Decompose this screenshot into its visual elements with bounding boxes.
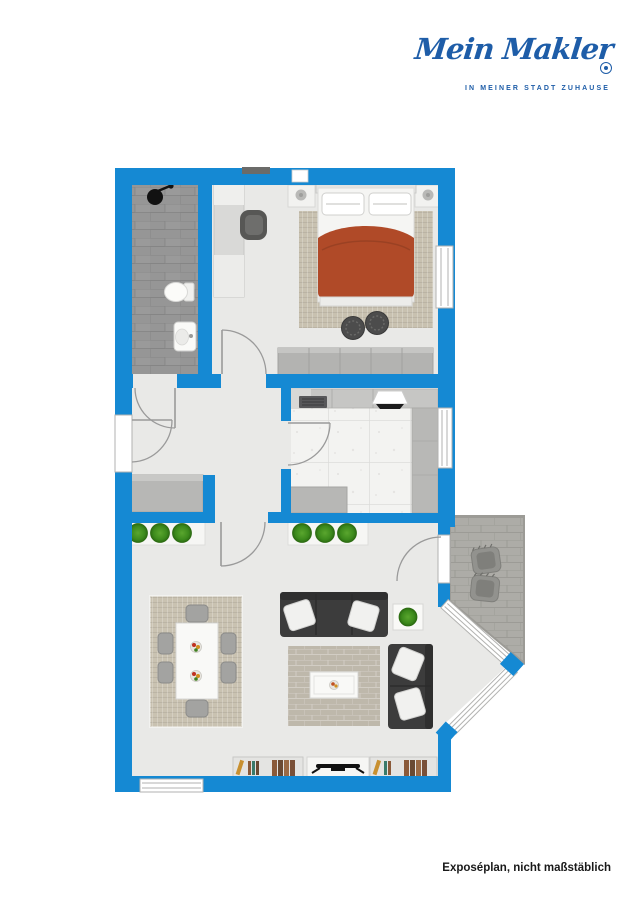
brand-tagline: IN MEINER STADT ZUHAUSE	[402, 85, 612, 92]
wall-left	[115, 168, 132, 792]
side-table	[393, 604, 423, 630]
hallway	[123, 475, 203, 512]
floor-plan	[0, 0, 636, 900]
plant-shelf-right	[288, 522, 368, 545]
plant-icon	[151, 524, 170, 543]
coffee-table	[310, 672, 358, 698]
wall-kitchen-bottom	[281, 513, 455, 523]
toilet	[165, 283, 195, 302]
wall-kitchen-left	[281, 388, 291, 421]
plan-caption: Exposéplan, nicht maßstäblich	[442, 862, 611, 874]
sofa-large	[280, 592, 388, 637]
wall-top	[115, 168, 455, 185]
dining-table	[176, 623, 218, 699]
plant-shelf-left	[122, 522, 205, 545]
brand-logo: Mein Makler IN MEINER STADT ZUHAUSE	[402, 34, 612, 92]
sink	[174, 322, 196, 351]
pouf	[342, 317, 365, 340]
fruit-bowl	[191, 671, 202, 682]
bookshelf	[370, 757, 437, 778]
fruit-bowl	[191, 642, 202, 653]
plant-icon	[173, 524, 192, 543]
wall-right-upper	[438, 168, 455, 527]
kitchen-low-cabinet	[285, 487, 347, 513]
nightstand-right	[415, 185, 442, 207]
wall-bathroom-right	[198, 185, 212, 388]
window-bottom	[140, 779, 203, 792]
hall-sideboard	[123, 475, 203, 512]
stove	[299, 396, 327, 408]
dining-chair	[186, 700, 208, 717]
dining-chair	[158, 662, 173, 683]
logo-registered-icon	[600, 62, 612, 74]
desk-chair	[240, 210, 267, 240]
top-wall-notch	[292, 170, 308, 182]
wardrobe	[278, 348, 433, 375]
dining-chair	[221, 633, 236, 654]
dining-chair	[221, 662, 236, 683]
brand-name: Mein Makler	[413, 34, 614, 64]
blanket	[318, 226, 414, 298]
nightstand-left	[288, 185, 315, 207]
wall-hall-living	[115, 512, 215, 523]
bookshelf	[233, 757, 303, 778]
kitchen-counter-right	[412, 408, 438, 513]
window-bedroom	[436, 246, 453, 308]
top-wall-vent	[242, 167, 270, 174]
window-kitchen	[438, 408, 452, 468]
dining-chair	[186, 605, 208, 622]
wall-stub	[203, 475, 215, 522]
plant-icon	[293, 524, 312, 543]
plant-icon	[316, 524, 335, 543]
sofa-small	[388, 644, 433, 729]
plant-icon	[399, 608, 417, 626]
tv-board	[307, 757, 369, 778]
plant-icon	[338, 524, 357, 543]
pouf	[366, 312, 389, 335]
dining-chair	[158, 633, 173, 654]
double-bed	[316, 184, 416, 306]
desk	[214, 185, 244, 297]
